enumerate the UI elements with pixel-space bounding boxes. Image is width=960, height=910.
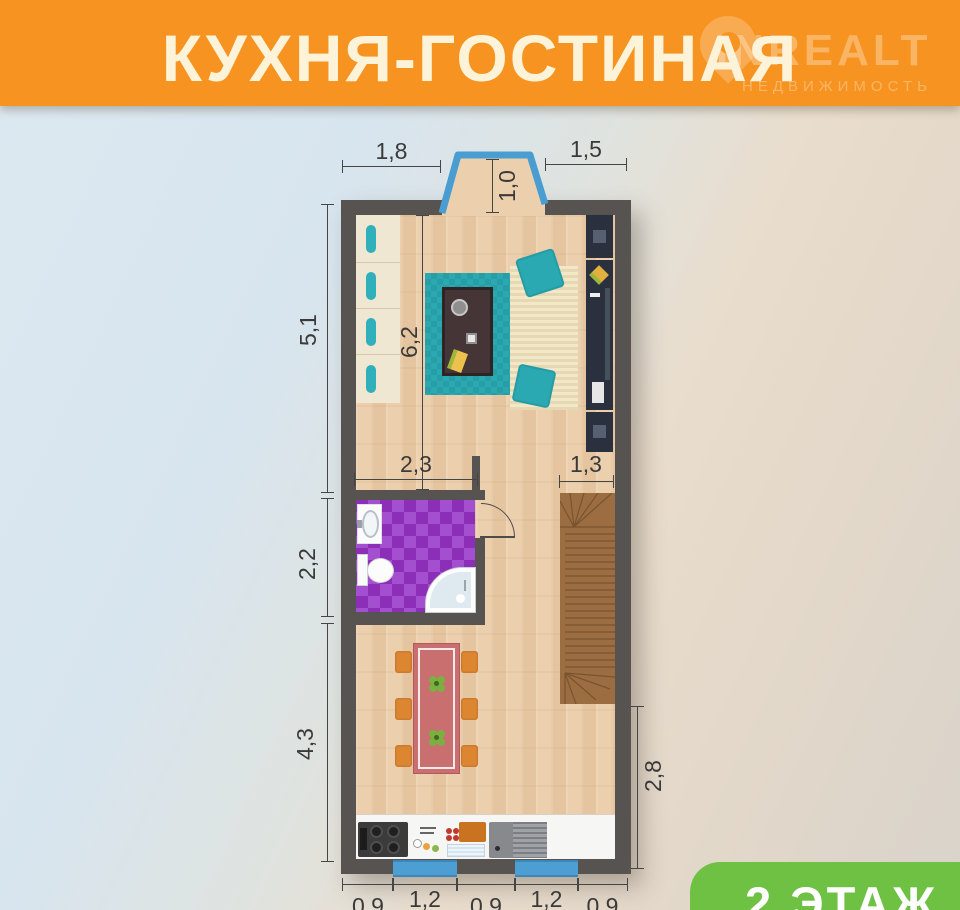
dim-label: 1,5 <box>546 136 626 163</box>
wardrobe-handle <box>366 272 376 300</box>
dim-line-lower-right <box>637 707 638 868</box>
kitchen-window-right <box>515 860 578 877</box>
tv-console <box>586 260 613 410</box>
shelf-item <box>590 293 600 297</box>
table-plant <box>429 730 437 738</box>
tv-screen <box>605 288 610 380</box>
shower-handle <box>464 580 466 591</box>
dim-label: 1,2 <box>515 886 578 910</box>
cabinet-door <box>592 382 604 403</box>
kitchen-window-left <box>393 860 457 877</box>
dim-label: 1,2 <box>393 886 457 910</box>
sink-drainer <box>513 822 547 858</box>
wardrobe-divider <box>356 354 400 355</box>
page-title: КУХНЯ-ГОСТИНАЯ <box>0 20 960 96</box>
faucet-icon <box>495 846 500 851</box>
floor-badge-label: 2 ЭТАЖ <box>745 876 960 910</box>
dim-line-bay-right <box>546 164 626 165</box>
dim-line-bath-left <box>327 499 328 616</box>
title-banner: INREALT НЕДВИЖИМОСТЬ КУХНЯ-ГОСТИНАЯ <box>0 0 960 106</box>
dim-label: 2,8 <box>641 753 665 799</box>
wardrobe-handle <box>366 225 376 253</box>
dining-chair <box>395 651 412 673</box>
wardrobe <box>356 215 400 403</box>
pouf <box>511 363 556 408</box>
toilet-bowl <box>367 558 394 583</box>
dim-label: 2,2 <box>295 541 319 587</box>
dim-line-bottom <box>393 884 457 885</box>
dining-table-runner <box>418 648 455 769</box>
dim-label: 5,1 <box>296 307 320 353</box>
burner-icon <box>387 841 400 854</box>
dim-line-bath-width <box>355 479 477 480</box>
wardrobe-handle <box>366 318 376 346</box>
bathroom-wall-bottom <box>356 612 485 625</box>
stove-panel <box>360 828 367 850</box>
dining-chair <box>461 698 478 720</box>
speaker-icon <box>593 230 606 243</box>
spice-jars <box>414 840 421 847</box>
floorplan-image: INREALT НЕДВИЖИМОСТЬ КУХНЯ-ГОСТИНАЯ <box>0 0 960 910</box>
dim-label: 2,3 <box>355 451 477 478</box>
utensil-icon <box>420 832 434 834</box>
dim-line-living-left <box>327 205 328 492</box>
dim-label: 6,2 <box>397 319 421 365</box>
bathroom-wall-right <box>475 538 485 612</box>
dim-line-stairs-width <box>560 481 613 482</box>
dim-label: 4,3 <box>293 721 317 767</box>
kitchen-sink <box>489 822 547 858</box>
kitchen-plant <box>446 828 452 834</box>
bay-window <box>430 147 550 215</box>
dim-label: 1,0 <box>495 163 519 209</box>
table-plant <box>429 676 437 684</box>
dining-table <box>413 643 460 774</box>
shower-drain <box>456 594 465 603</box>
dish-mat <box>447 844 485 857</box>
dim-line-bay-left <box>343 166 440 167</box>
dining-chair <box>461 651 478 673</box>
table-plant-pot <box>451 299 468 316</box>
dim-label: 1,3 <box>541 451 631 478</box>
dining-chair <box>395 745 412 767</box>
wardrobe-divider <box>356 262 400 263</box>
sink-basin <box>362 510 379 538</box>
dim-line-bottom <box>515 884 578 885</box>
dim-line-dining-left <box>327 624 328 861</box>
burner-icon <box>370 841 383 854</box>
dim-line-bottom <box>343 884 393 885</box>
dining-chair <box>461 745 478 767</box>
dim-label: 0,9 <box>343 893 393 910</box>
burner-icon <box>387 825 400 838</box>
media-cabinet-top <box>586 215 613 258</box>
burner-icon <box>370 825 383 838</box>
stove-cooktop <box>358 822 408 857</box>
wardrobe-divider <box>356 308 400 309</box>
speaker-icon <box>593 425 606 438</box>
table-tray <box>466 333 477 344</box>
dining-chair <box>395 698 412 720</box>
decor-item <box>589 265 609 285</box>
bathroom-wall-top <box>356 490 485 500</box>
dim-label: 0,9 <box>457 893 515 910</box>
dim-line-bottom <box>457 884 515 885</box>
utensil-icon <box>420 827 436 829</box>
cutting-board <box>459 822 486 842</box>
staircase <box>560 493 615 704</box>
faucet-icon <box>357 520 362 528</box>
bathroom-sink <box>357 504 382 544</box>
dim-line-bottom <box>578 884 627 885</box>
dim-label: 1,8 <box>343 138 440 165</box>
dim-label: 0,9 <box>578 893 627 910</box>
media-cabinet-bottom <box>586 412 613 452</box>
wardrobe-handle <box>366 365 376 393</box>
